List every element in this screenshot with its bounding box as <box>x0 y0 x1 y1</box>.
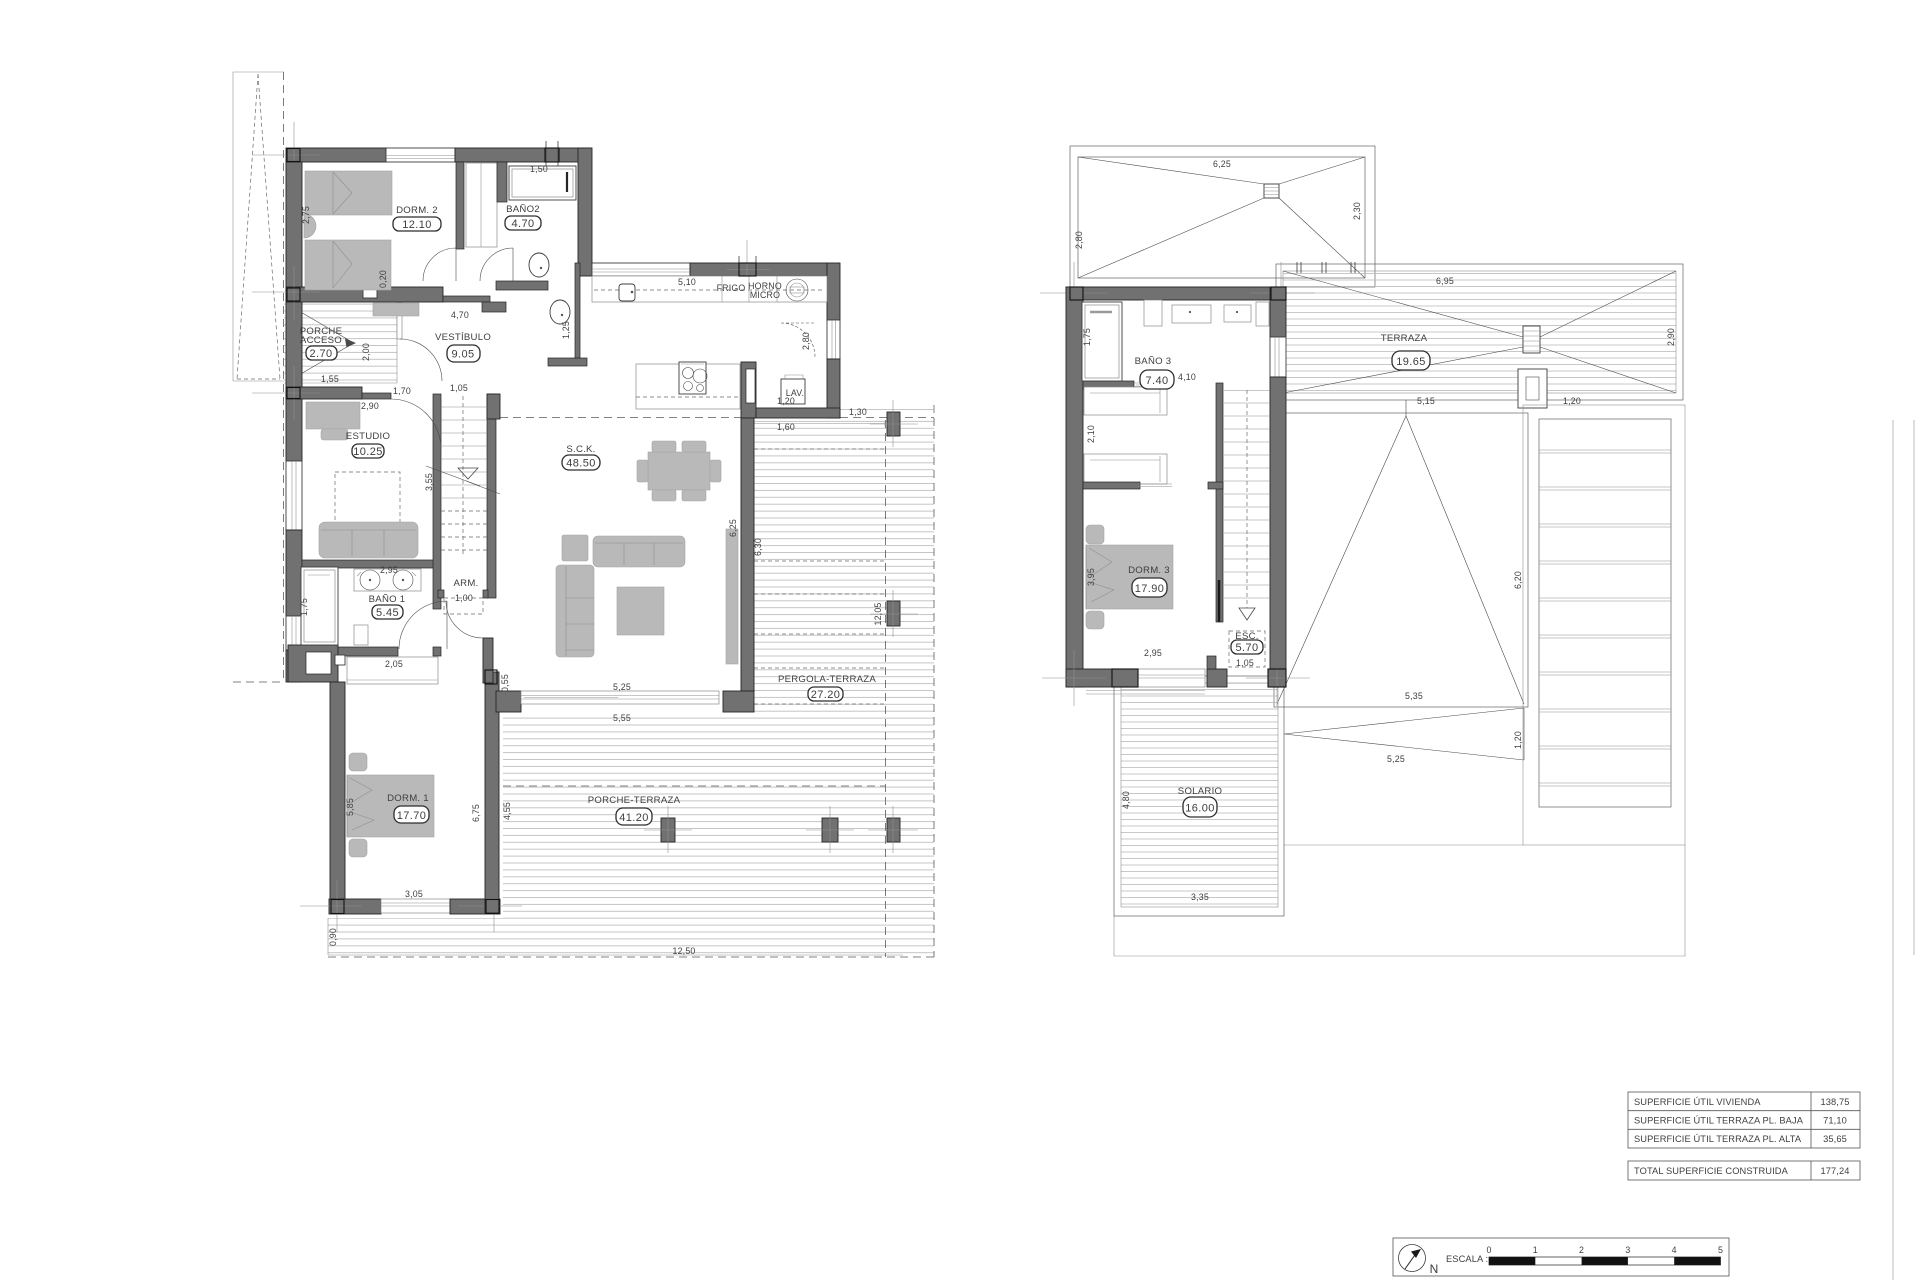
svg-text:FRIGO: FRIGO <box>717 283 746 293</box>
svg-text:4.70: 4.70 <box>511 218 534 230</box>
svg-text:1,75: 1,75 <box>299 598 309 616</box>
svg-text:SUPERFICIE ÚTIL TERRAZA PL. BA: SUPERFICIE ÚTIL TERRAZA PL. BAJA <box>1634 1116 1804 1126</box>
svg-text:6,25: 6,25 <box>728 519 738 537</box>
svg-text:1: 1 <box>1533 1245 1538 1255</box>
svg-text:4,10: 4,10 <box>1178 372 1196 382</box>
svg-text:1,50: 1,50 <box>530 164 548 174</box>
svg-text:2,10: 2,10 <box>1086 425 1096 443</box>
svg-text:2: 2 <box>1579 1245 1584 1255</box>
svg-text:SOLARIO: SOLARIO <box>1178 786 1222 797</box>
svg-text:35,65: 35,65 <box>1823 1134 1847 1144</box>
svg-text:2,90: 2,90 <box>1666 328 1676 346</box>
svg-text:ESTUDIO: ESTUDIO <box>346 431 390 442</box>
svg-text:4,55: 4,55 <box>502 802 512 820</box>
svg-text:19.65: 19.65 <box>1396 356 1426 368</box>
svg-text:5,25: 5,25 <box>1387 754 1405 764</box>
svg-text:3,05: 3,05 <box>405 889 423 899</box>
svg-text:1,75: 1,75 <box>1082 328 1092 346</box>
svg-text:5,35: 5,35 <box>1405 691 1423 701</box>
svg-text:S.C.K.: S.C.K. <box>566 444 595 455</box>
svg-text:5,55: 5,55 <box>613 713 631 723</box>
svg-text:3: 3 <box>1625 1245 1630 1255</box>
svg-text:4,70: 4,70 <box>451 310 469 320</box>
svg-text:6,25: 6,25 <box>1213 159 1231 169</box>
svg-text:DORM. 1: DORM. 1 <box>387 793 429 804</box>
svg-text:MICRO: MICRO <box>750 290 780 300</box>
svg-text:41.20: 41.20 <box>619 812 649 824</box>
svg-text:177,24: 177,24 <box>1820 1166 1849 1176</box>
svg-text:12,50: 12,50 <box>672 946 695 956</box>
svg-text:PERGOLA-TERRAZA: PERGOLA-TERRAZA <box>778 674 876 685</box>
svg-text:7.40: 7.40 <box>1145 375 1168 387</box>
svg-text:71,10: 71,10 <box>1823 1116 1847 1126</box>
svg-text:5,85: 5,85 <box>345 798 355 816</box>
svg-text:DORM. 3: DORM. 3 <box>1128 565 1170 576</box>
svg-text:SUPERFICIE ÚTIL TERRAZA PL. AL: SUPERFICIE ÚTIL TERRAZA PL. ALTA <box>1634 1134 1802 1144</box>
svg-text:0,90: 0,90 <box>328 928 338 946</box>
svg-text:2,90: 2,90 <box>361 401 379 411</box>
svg-text:6,75: 6,75 <box>471 804 481 822</box>
svg-text:1,30: 1,30 <box>849 407 867 417</box>
svg-text:2,00: 2,00 <box>361 343 371 361</box>
svg-text:138,75: 138,75 <box>1820 1097 1849 1107</box>
svg-text:5: 5 <box>1718 1245 1723 1255</box>
svg-text:TOTAL SUPERFICIE CONSTRUIDA: TOTAL SUPERFICIE CONSTRUIDA <box>1634 1166 1789 1176</box>
svg-text:2,80: 2,80 <box>1074 231 1084 249</box>
svg-text:16.00: 16.00 <box>1185 803 1215 815</box>
svg-text:9.05: 9.05 <box>451 349 474 361</box>
svg-text:PORCHE-TERRAZA: PORCHE-TERRAZA <box>588 795 681 806</box>
svg-text:1,00: 1,00 <box>455 593 473 603</box>
svg-text:ARM.: ARM. <box>454 578 479 589</box>
svg-text:1,20: 1,20 <box>777 396 795 406</box>
svg-text:3,95: 3,95 <box>1086 568 1096 586</box>
svg-text:12,05: 12,05 <box>873 602 883 625</box>
svg-text:3,55: 3,55 <box>424 473 434 491</box>
svg-text:10.25: 10.25 <box>353 446 383 458</box>
svg-text:48.50: 48.50 <box>566 458 596 470</box>
svg-text:1,60: 1,60 <box>777 422 795 432</box>
svg-text:1,70: 1,70 <box>393 386 411 396</box>
svg-text:5,15: 5,15 <box>1417 396 1435 406</box>
svg-text:2,95: 2,95 <box>1144 648 1162 658</box>
svg-text:BAÑO 1: BAÑO 1 <box>369 594 406 605</box>
svg-text:BAÑO 3: BAÑO 3 <box>1135 356 1172 367</box>
svg-text:2,05: 2,05 <box>385 659 403 669</box>
svg-text:ACCESO: ACCESO <box>300 335 342 346</box>
svg-text:N: N <box>1430 1262 1439 1276</box>
svg-text:VESTÍBULO: VESTÍBULO <box>435 332 491 343</box>
svg-text:6,95: 6,95 <box>1436 276 1454 286</box>
svg-text:2,75: 2,75 <box>301 206 311 224</box>
svg-text:0,20: 0,20 <box>378 270 388 288</box>
svg-text:17.90: 17.90 <box>1135 583 1165 595</box>
svg-text:1,20: 1,20 <box>1513 731 1523 749</box>
svg-text:5,10: 5,10 <box>678 277 696 287</box>
svg-text:DORM. 2: DORM. 2 <box>396 205 438 216</box>
svg-text:2.70: 2.70 <box>309 348 332 360</box>
svg-text:2,30: 2,30 <box>1352 202 1362 220</box>
svg-text:27.20: 27.20 <box>811 689 841 701</box>
svg-text:2,80: 2,80 <box>801 332 811 350</box>
svg-text:ESCALA :: ESCALA : <box>1446 1254 1488 1264</box>
svg-text:0: 0 <box>1486 1245 1491 1255</box>
svg-text:1,20: 1,20 <box>1563 396 1581 406</box>
svg-text:6,20: 6,20 <box>1513 571 1523 589</box>
svg-text:1,25: 1,25 <box>561 321 571 339</box>
svg-text:12.10: 12.10 <box>402 219 432 231</box>
svg-text:BAÑO2: BAÑO2 <box>506 204 540 215</box>
svg-text:6,30: 6,30 <box>753 538 763 556</box>
svg-text:2,95: 2,95 <box>380 565 398 575</box>
svg-text:5.70: 5.70 <box>1235 642 1258 654</box>
svg-text:5.45: 5.45 <box>376 607 399 619</box>
svg-text:1,55: 1,55 <box>321 374 339 384</box>
svg-text:17.70: 17.70 <box>397 810 427 822</box>
svg-text:1,05: 1,05 <box>1236 658 1254 668</box>
svg-text:TERRAZA: TERRAZA <box>1381 333 1428 344</box>
svg-text:0,55: 0,55 <box>500 674 510 692</box>
svg-text:5,25: 5,25 <box>613 682 631 692</box>
svg-text:3,35: 3,35 <box>1191 892 1209 902</box>
svg-text:4: 4 <box>1672 1245 1677 1255</box>
svg-text:1,05: 1,05 <box>450 383 468 393</box>
svg-text:SUPERFICIE ÚTIL VIVIENDA: SUPERFICIE ÚTIL VIVIENDA <box>1634 1097 1761 1107</box>
svg-text:4,80: 4,80 <box>1121 791 1131 809</box>
